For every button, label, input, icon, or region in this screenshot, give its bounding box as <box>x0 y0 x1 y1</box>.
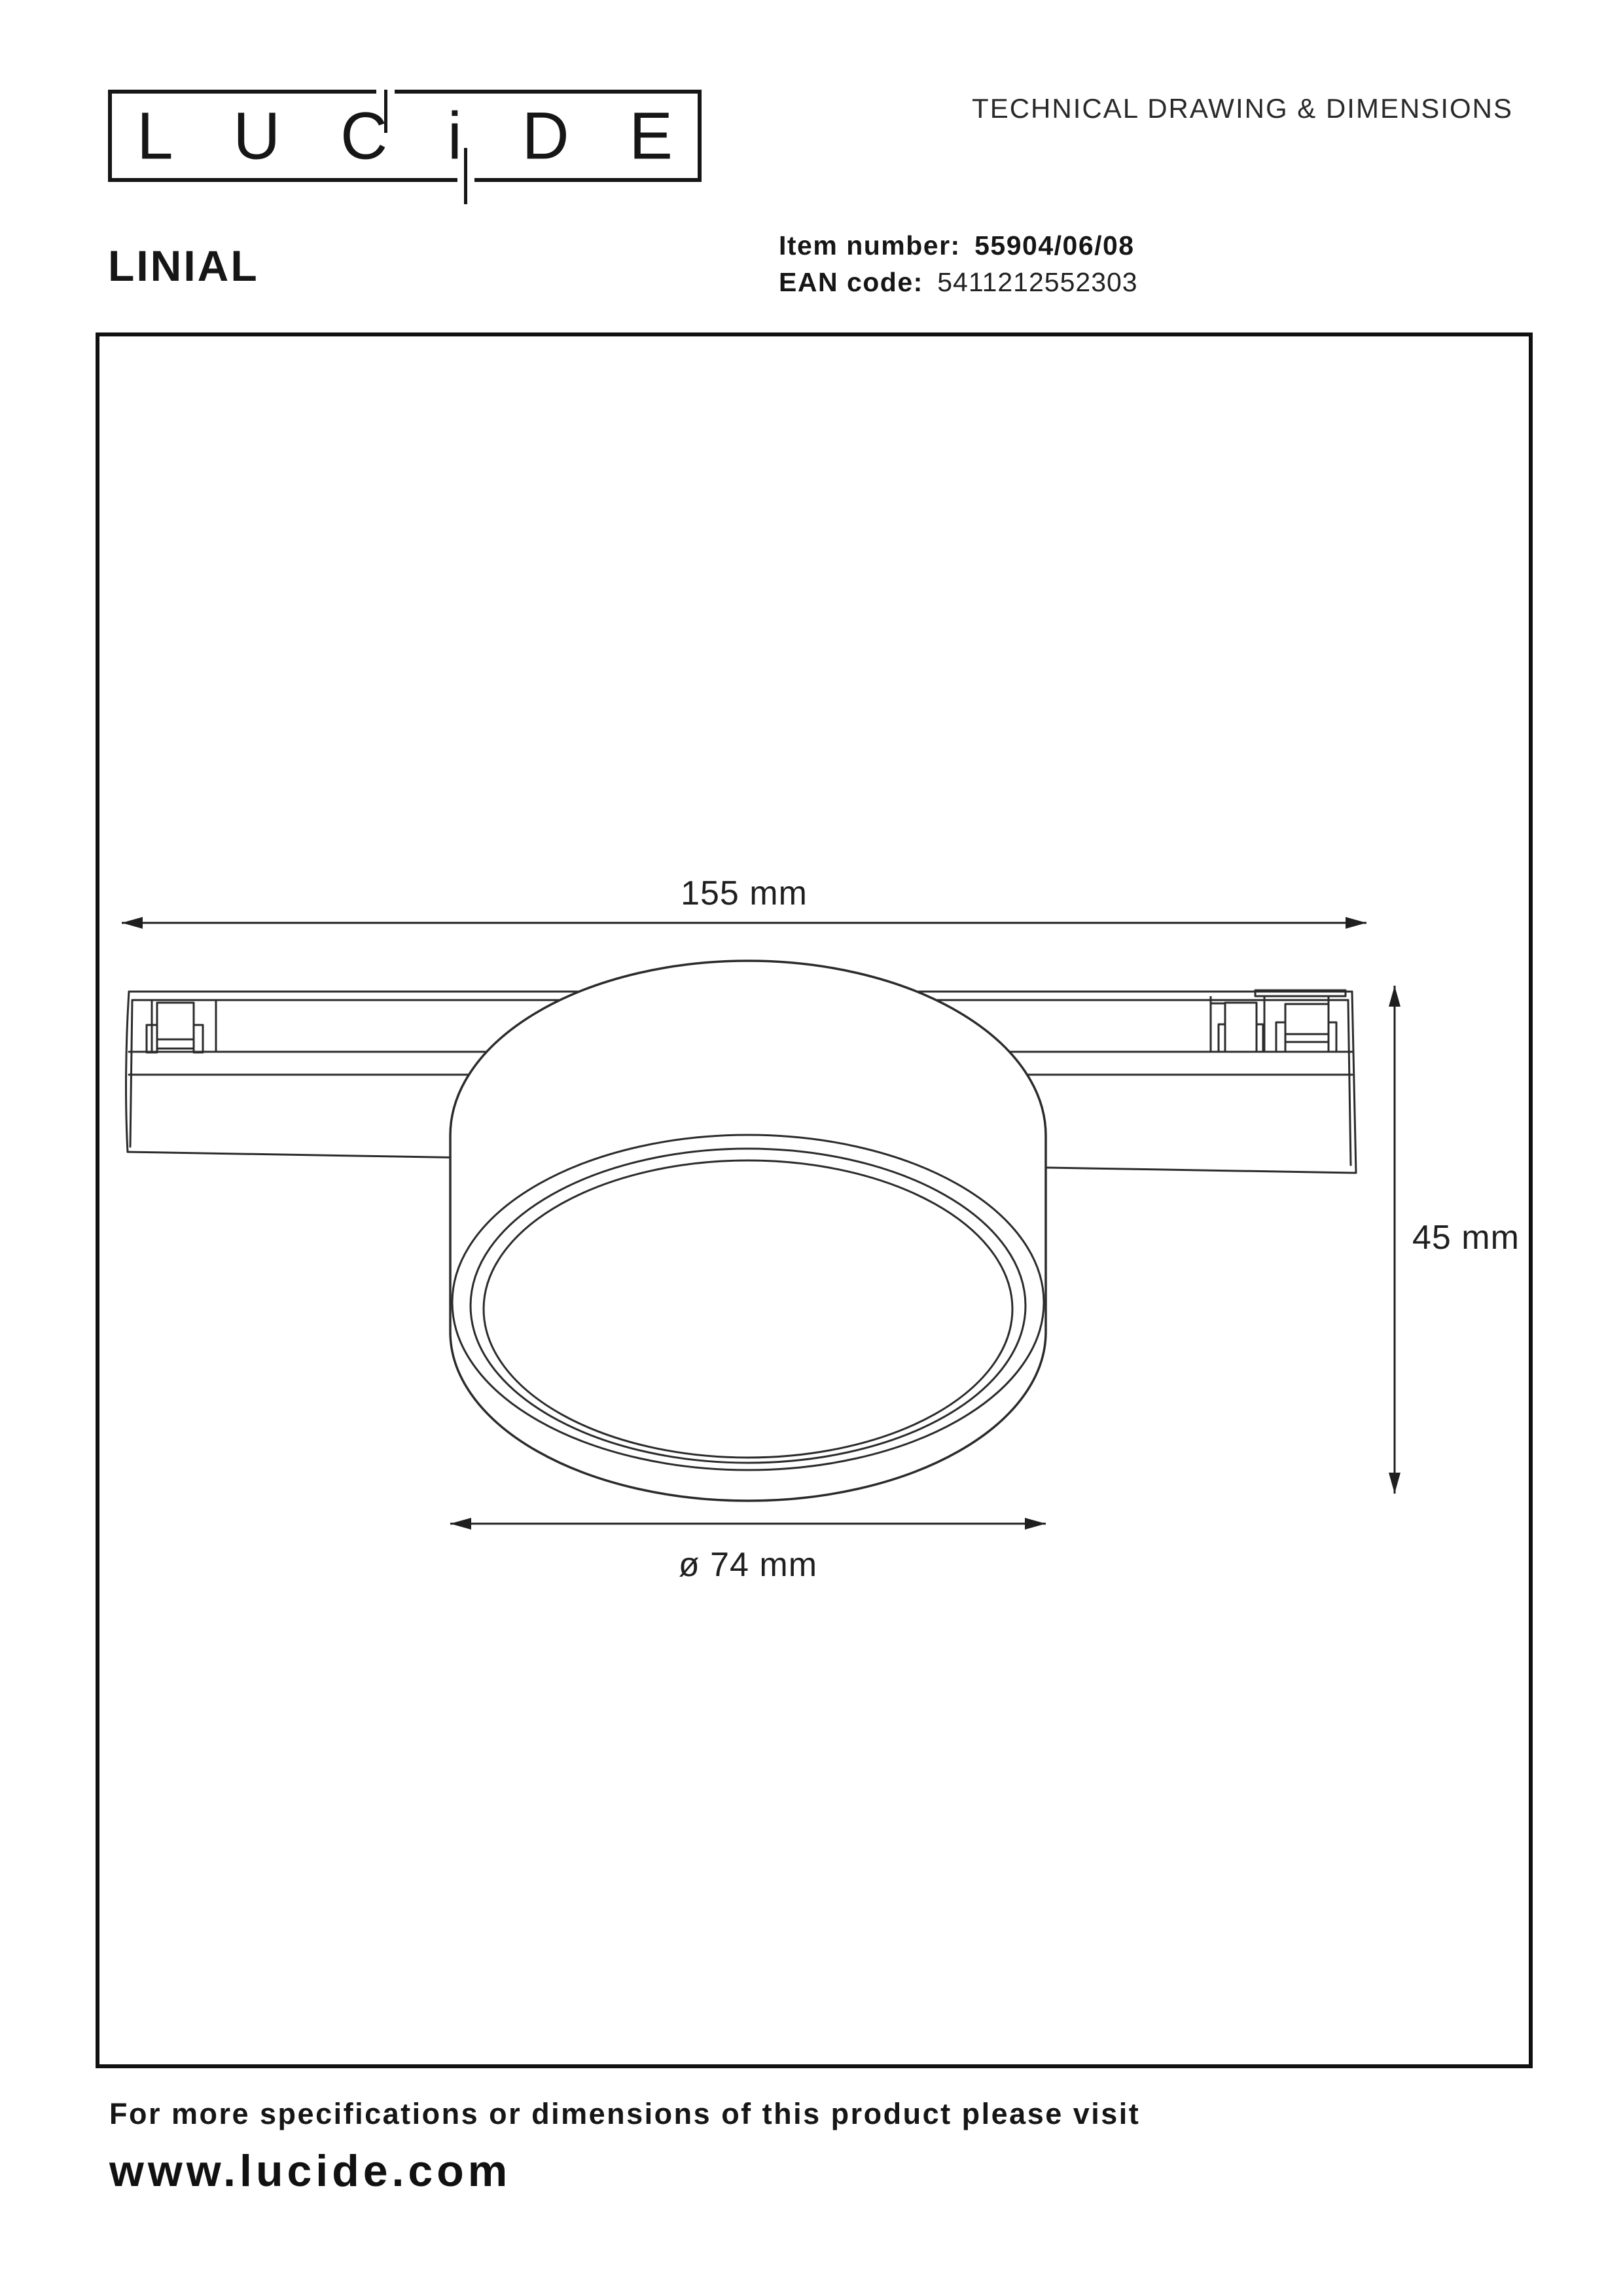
connector-right-foot-b2 <box>1329 1022 1336 1052</box>
technical-drawing: 155 mm 45 mm ø 74 mm <box>0 0 1623 2296</box>
connector-left-inner <box>157 1003 194 1049</box>
connector-right-foot-a2 <box>1257 1024 1263 1052</box>
dimension-diameter-arrow-left <box>450 1518 471 1530</box>
dimension-height-label: 45 mm <box>1412 1219 1520 1257</box>
page-root: { "brand": { "logo_letters": ["L", "U", … <box>0 0 1623 2296</box>
footer-note: For more specifications or dimensions of… <box>109 2097 1140 2131</box>
dimension-width-label: 155 mm <box>681 874 808 912</box>
spotlight-cylinder <box>450 961 1046 1501</box>
dimension-diameter-label: ø 74 mm <box>679 1546 817 1584</box>
dimension-height: 45 mm <box>1389 986 1520 1494</box>
connector-right-foot-a1 <box>1219 1024 1225 1052</box>
dimension-height-arrow-top <box>1389 986 1400 1007</box>
track-connector-left <box>147 1000 216 1052</box>
track-left-endcap-inner <box>130 1000 132 1147</box>
track-left-endcap <box>126 992 129 1152</box>
connector-left-foot-b <box>194 1025 203 1052</box>
connector-left-outer <box>152 1000 216 1052</box>
track-right-endcap-inner <box>1348 1000 1351 1165</box>
connector-right-foot-b1 <box>1276 1022 1285 1052</box>
dimension-height-arrow-bottom <box>1389 1473 1400 1494</box>
connector-right-block-b-inner <box>1285 1004 1329 1034</box>
track-right-endcap <box>1352 992 1356 1173</box>
dimension-width: 155 mm <box>122 874 1366 929</box>
dimension-diameter: ø 74 mm <box>450 1518 1046 1584</box>
dimension-width-arrow-right <box>1346 917 1366 929</box>
website-link[interactable]: www.lucide.com <box>109 2145 511 2197</box>
dimension-diameter-arrow-right <box>1025 1518 1046 1530</box>
dimension-width-arrow-left <box>122 917 143 929</box>
cylinder-body <box>450 961 1046 1501</box>
connector-right-block-a <box>1225 1003 1257 1052</box>
